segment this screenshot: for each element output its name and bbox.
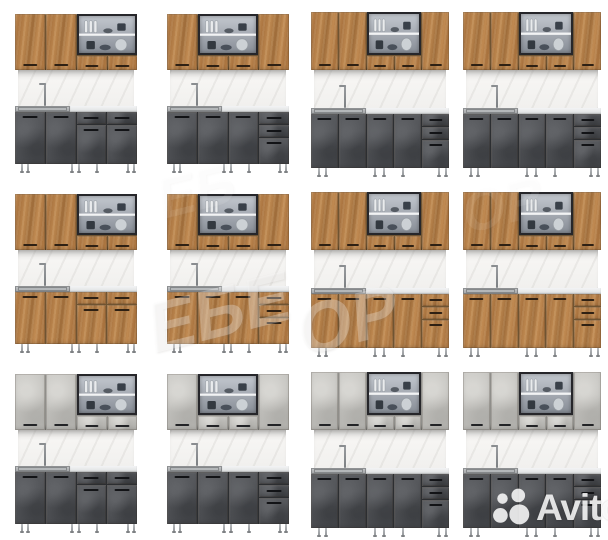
upper-cabinets [167,374,289,430]
glass-cabinet-column [198,374,258,430]
door-handle [85,65,98,67]
lower-cabinet-column [422,474,449,528]
door-handle [581,64,593,66]
lower-cabinet-door [107,305,137,344]
door-handle [267,502,282,504]
door-handle [525,298,538,300]
cabinet-leg [470,348,472,357]
lower-cabinets [311,294,449,348]
drawer-front [574,294,601,306]
dishes-icon [369,374,419,413]
drawer-front [574,474,601,486]
drawer-front [107,472,137,484]
drawer-handle [429,312,442,314]
lower-cabinets [167,472,289,524]
door-handle [236,116,251,118]
drawer-front [422,487,449,499]
upper-cabinet-column [463,192,490,250]
door-handle [54,244,68,246]
lower-cabinet-door [463,114,490,168]
cabinet-leg [285,524,287,533]
cabinet-leg [173,344,175,353]
glass-display-cabinet [367,192,421,235]
faucet-spout [39,263,46,265]
door-handle [554,245,566,247]
upper-short-door [198,236,228,250]
lower-cabinet-column [394,114,421,168]
lower-cabinet-door [198,472,228,524]
upper-cabinets [15,374,137,430]
lower-cabinet-door [574,320,601,348]
lower-cabinet-door [259,138,289,164]
sink-bowl [170,287,219,291]
lower-cabinet-column [46,292,76,344]
drawer-handle [581,479,594,481]
upper-cabinet-door [311,12,338,70]
faucet-spout [339,445,346,447]
upper-short-door [77,416,107,430]
lower-cabinets [167,112,289,164]
door-handle [373,298,386,300]
cabinet-leg [21,524,23,533]
faucet [496,85,498,108]
cabinet-leg [438,168,440,177]
cabinet-leg [590,168,592,177]
drawer-handle [267,130,282,132]
dishes-icon [79,16,135,53]
cabinet-leg [248,344,250,353]
faucet [44,263,46,286]
lower-cabinet-door [15,292,45,344]
sink-bowl [18,467,67,471]
lower-cabinet-door [339,474,366,528]
cabinet-leg [554,348,556,357]
drawer-front [107,292,137,304]
upper-cabinet-column [167,14,197,70]
door-handle [318,118,331,120]
cabinet-leg [78,344,80,353]
door-handle [374,245,386,247]
upper-cabinet-door [259,14,289,70]
door-handle [553,298,566,300]
faucet-spout [39,443,46,445]
upper-cabinet-door [46,194,76,250]
cabinet-leg [535,348,537,357]
cabinet-legs [15,344,137,353]
backsplash-panel [170,70,286,106]
lower-cabinet-column [229,292,259,344]
door-handle [345,478,358,480]
backsplash-panel [170,250,286,286]
door-handle [429,324,442,326]
lower-cabinet-column [546,294,573,348]
upper-short-door [229,56,259,70]
sink-bowl [18,287,67,291]
upper-short-door [367,56,394,70]
upper-cabinets [463,12,601,70]
upper-cabinet-column [339,192,366,250]
door-handle [554,65,566,67]
drawer-front [259,472,289,484]
dishes-icon [369,14,419,53]
door-handle [581,244,593,246]
drawer-front [259,125,289,137]
drawer-handle [581,299,594,301]
backsplash-panel [314,70,446,108]
cabinet-legs [463,168,601,177]
door-handle [267,142,282,144]
upper-cabinet-door [46,14,76,70]
door-handle [54,64,68,66]
dishes-icon [79,376,135,413]
drawer-handle [581,492,594,494]
cabinet-leg [597,168,599,177]
drawer-handle [429,119,442,121]
cabinet-leg [71,344,73,353]
dishes-icon [369,194,419,233]
door-handle [237,425,250,427]
lower-cabinet-door [198,292,228,344]
door-handle [402,65,414,67]
upper-cabinet-column [491,12,518,70]
upper-cabinet-column [15,374,45,430]
cabinet-leg [526,348,528,357]
lower-cabinet-door [519,114,546,168]
door-handle [205,296,220,298]
upper-cabinet-column [491,192,518,250]
lower-cabinet-door [394,474,421,528]
upper-cabinet-column [167,374,197,430]
cabinet-leg [477,528,479,537]
upper-cabinet-column [259,194,289,250]
upper-cabinet-door [15,194,45,250]
lower-cabinets [311,114,449,168]
cabinet-leg [535,528,537,537]
upper-cabinet-door [463,192,490,250]
lower-cabinet-column [107,292,137,344]
door-handle [374,65,386,67]
drawer-handle [429,132,442,134]
faucet-spout [339,265,346,267]
lower-cabinet-column [167,292,197,344]
lower-cabinet-column [574,294,601,348]
dishes-icon [521,194,571,233]
backsplash-panel [466,70,598,108]
dishes-icon [200,196,256,233]
lower-cabinet-column [198,112,228,164]
door-handle [470,424,482,426]
door-handle [267,424,281,426]
upper-cabinet-column [259,374,289,430]
faucet [44,443,46,466]
lower-cabinet-column [107,472,137,524]
glass-lower-doors [198,56,258,70]
door-handle [53,296,68,298]
glass-lower-doors [519,56,573,70]
upper-short-door [547,416,574,430]
door-handle [206,65,219,67]
lower-cabinet-door [167,292,197,344]
door-handle [85,245,98,247]
upper-short-door [108,56,138,70]
cabinet-leg [374,168,376,177]
upper-cabinet-door [167,194,197,250]
door-handle [22,476,37,478]
upper-cabinets [463,372,601,430]
cabinet-leg [383,168,385,177]
upper-cabinets [15,194,137,250]
drawer-front [77,472,107,484]
glass-cabinet-column [198,194,258,250]
door-handle [53,476,68,478]
lower-cabinets [463,474,601,528]
lower-cabinet-door [15,112,45,164]
door-handle [470,478,483,480]
cabinet-leg [554,528,556,537]
dishes-icon [521,14,571,53]
cabinet-leg [71,524,73,533]
cabinet-leg [279,344,281,353]
lower-cabinet-door [77,305,107,344]
glass-cabinet-column [519,12,573,70]
sink-bowl [170,467,219,471]
door-handle [174,116,189,118]
upper-cabinets [311,372,449,430]
door-handle [498,64,510,66]
lower-cabinet-door [77,125,107,164]
door-handle [237,65,250,67]
door-handle [526,245,538,247]
glass-cabinet-column [77,14,137,70]
glass-display-cabinet [77,194,137,235]
cabinet-leg [173,164,175,173]
door-handle [23,424,37,426]
dishes-icon [200,16,256,53]
upper-cabinet-door [15,14,45,70]
upper-short-door [108,416,138,430]
cabinet-leg [96,164,98,173]
drawer-handle [429,492,442,494]
faucet [496,265,498,288]
door-handle [84,489,99,491]
drawer-front [259,292,289,304]
lower-cabinet-door [574,140,601,168]
door-handle [581,424,593,426]
door-handle [267,64,281,66]
door-handle [429,144,442,146]
lower-cabinet-column [519,114,546,168]
cabinet-leg [96,524,98,533]
faucet [44,83,46,106]
door-handle [497,478,510,480]
lower-cabinet-door [339,114,366,168]
faucet [496,445,498,468]
door-handle [402,425,414,427]
glass-lower-doors [77,56,137,70]
door-handle [401,478,414,480]
faucet [344,85,346,108]
cabinet-leg [179,344,181,353]
drawer-front [422,474,449,486]
upper-cabinet-column [574,192,601,250]
lower-cabinet-column [15,112,45,164]
drawer-front [77,292,107,304]
cabinet-leg [133,344,135,353]
door-handle [429,244,441,246]
cabinet-leg [325,348,327,357]
lower-cabinets [463,114,601,168]
lower-cabinet-door [46,112,76,164]
glass-lower-doors [77,236,137,250]
door-handle [345,118,358,120]
door-handle [318,478,331,480]
cabinet-leg [470,168,472,177]
upper-cabinet-column [46,14,76,70]
upper-cabinets [167,194,289,250]
door-handle [174,476,189,478]
upper-cabinets [463,192,601,250]
lower-cabinet-door [46,292,76,344]
sink-bowl [18,107,67,111]
door-handle [374,425,386,427]
backsplash-panel [466,430,598,468]
cabinet-leg [318,528,320,537]
cabinet-leg [179,524,181,533]
cabinet-leg [554,168,556,177]
cabinet-leg [325,528,327,537]
drawer-front [77,112,107,124]
upper-short-door [519,416,546,430]
upper-short-door [229,236,259,250]
drawer-front [259,305,289,317]
backsplash-panel [18,430,134,466]
drawer-handle [581,312,594,314]
cabinet-leg [173,524,175,533]
glass-cabinet-column [77,374,137,430]
upper-cabinet-column [311,372,338,430]
drawer-handle [267,117,282,119]
lower-cabinet-door [422,320,449,348]
door-handle [470,298,483,300]
door-handle [53,116,68,118]
cabinet-leg [402,348,404,357]
upper-cabinet-column [574,12,601,70]
upper-cabinet-door [463,372,490,430]
lower-cabinet-column [422,114,449,168]
door-handle [23,244,37,246]
cabinet-leg [223,164,225,173]
dishes-icon [521,374,571,413]
lower-cabinet-door [491,294,518,348]
faucet-spout [191,443,198,445]
glass-lower-doors [367,236,421,250]
door-handle [115,129,130,131]
sink-bowl [466,109,515,113]
upper-cabinet-door [167,14,197,70]
cabinet-leg [445,348,447,357]
cabinet-leg [279,524,281,533]
door-handle [174,296,189,298]
faucet [196,443,198,466]
cabinet-leg [133,164,135,173]
lower-cabinet-door [107,125,137,164]
door-handle [581,504,594,506]
upper-cabinet-column [15,14,45,70]
drawer-handle [581,132,594,134]
lower-cabinet-column [259,112,289,164]
lower-cabinets [15,112,137,164]
glass-display-cabinet [198,194,258,235]
cabinet-leg [127,164,129,173]
upper-cabinet-door [491,192,518,250]
lower-cabinet-column [394,474,421,528]
backsplash-panel [18,70,134,106]
cabinet-legs [311,528,449,537]
door-handle [346,244,358,246]
door-handle [22,116,37,118]
upper-cabinet-column [46,194,76,250]
upper-short-door [547,56,574,70]
drawer-front [574,307,601,319]
upper-cabinet-door [259,194,289,250]
lower-cabinet-column [339,294,366,348]
door-handle [175,64,189,66]
door-handle [498,244,510,246]
cabinet-leg [27,524,29,533]
door-handle [236,296,251,298]
lower-cabinet-column [491,474,518,528]
cabinet-leg [374,528,376,537]
cabinet-leg [223,344,225,353]
drawer-front [574,127,601,139]
cabinet-leg [470,528,472,537]
faucet [196,263,198,286]
faucet [196,83,198,106]
door-handle [346,64,358,66]
door-handle [498,424,510,426]
lower-cabinet-door [46,472,76,524]
upper-cabinet-door [46,374,76,430]
lower-cabinet-door [422,500,449,528]
door-handle [175,244,189,246]
upper-cabinets [311,12,449,70]
sink-bowl [314,109,363,113]
lower-cabinet-column [519,294,546,348]
cabinet-leg [590,528,592,537]
door-handle [402,245,414,247]
upper-cabinet-door [463,12,490,70]
lower-cabinet-column [546,474,573,528]
lower-cabinet-column [15,292,45,344]
sink-bowl [314,469,363,473]
lower-cabinet-door [259,498,289,524]
drawer-handle [267,490,282,492]
cabinet-leg [285,164,287,173]
lower-cabinet-column [46,112,76,164]
cabinet-leg [96,344,98,353]
faucet-spout [191,83,198,85]
lower-cabinet-column [259,292,289,344]
drawer-front [422,127,449,139]
cabinet-legs [311,348,449,357]
lower-cabinet-door [167,472,197,524]
upper-cabinet-door [339,12,366,70]
door-handle [429,424,441,426]
lower-cabinets [311,474,449,528]
lower-cabinet-door [367,294,394,348]
cabinet-leg [402,528,404,537]
upper-short-door [229,416,259,430]
